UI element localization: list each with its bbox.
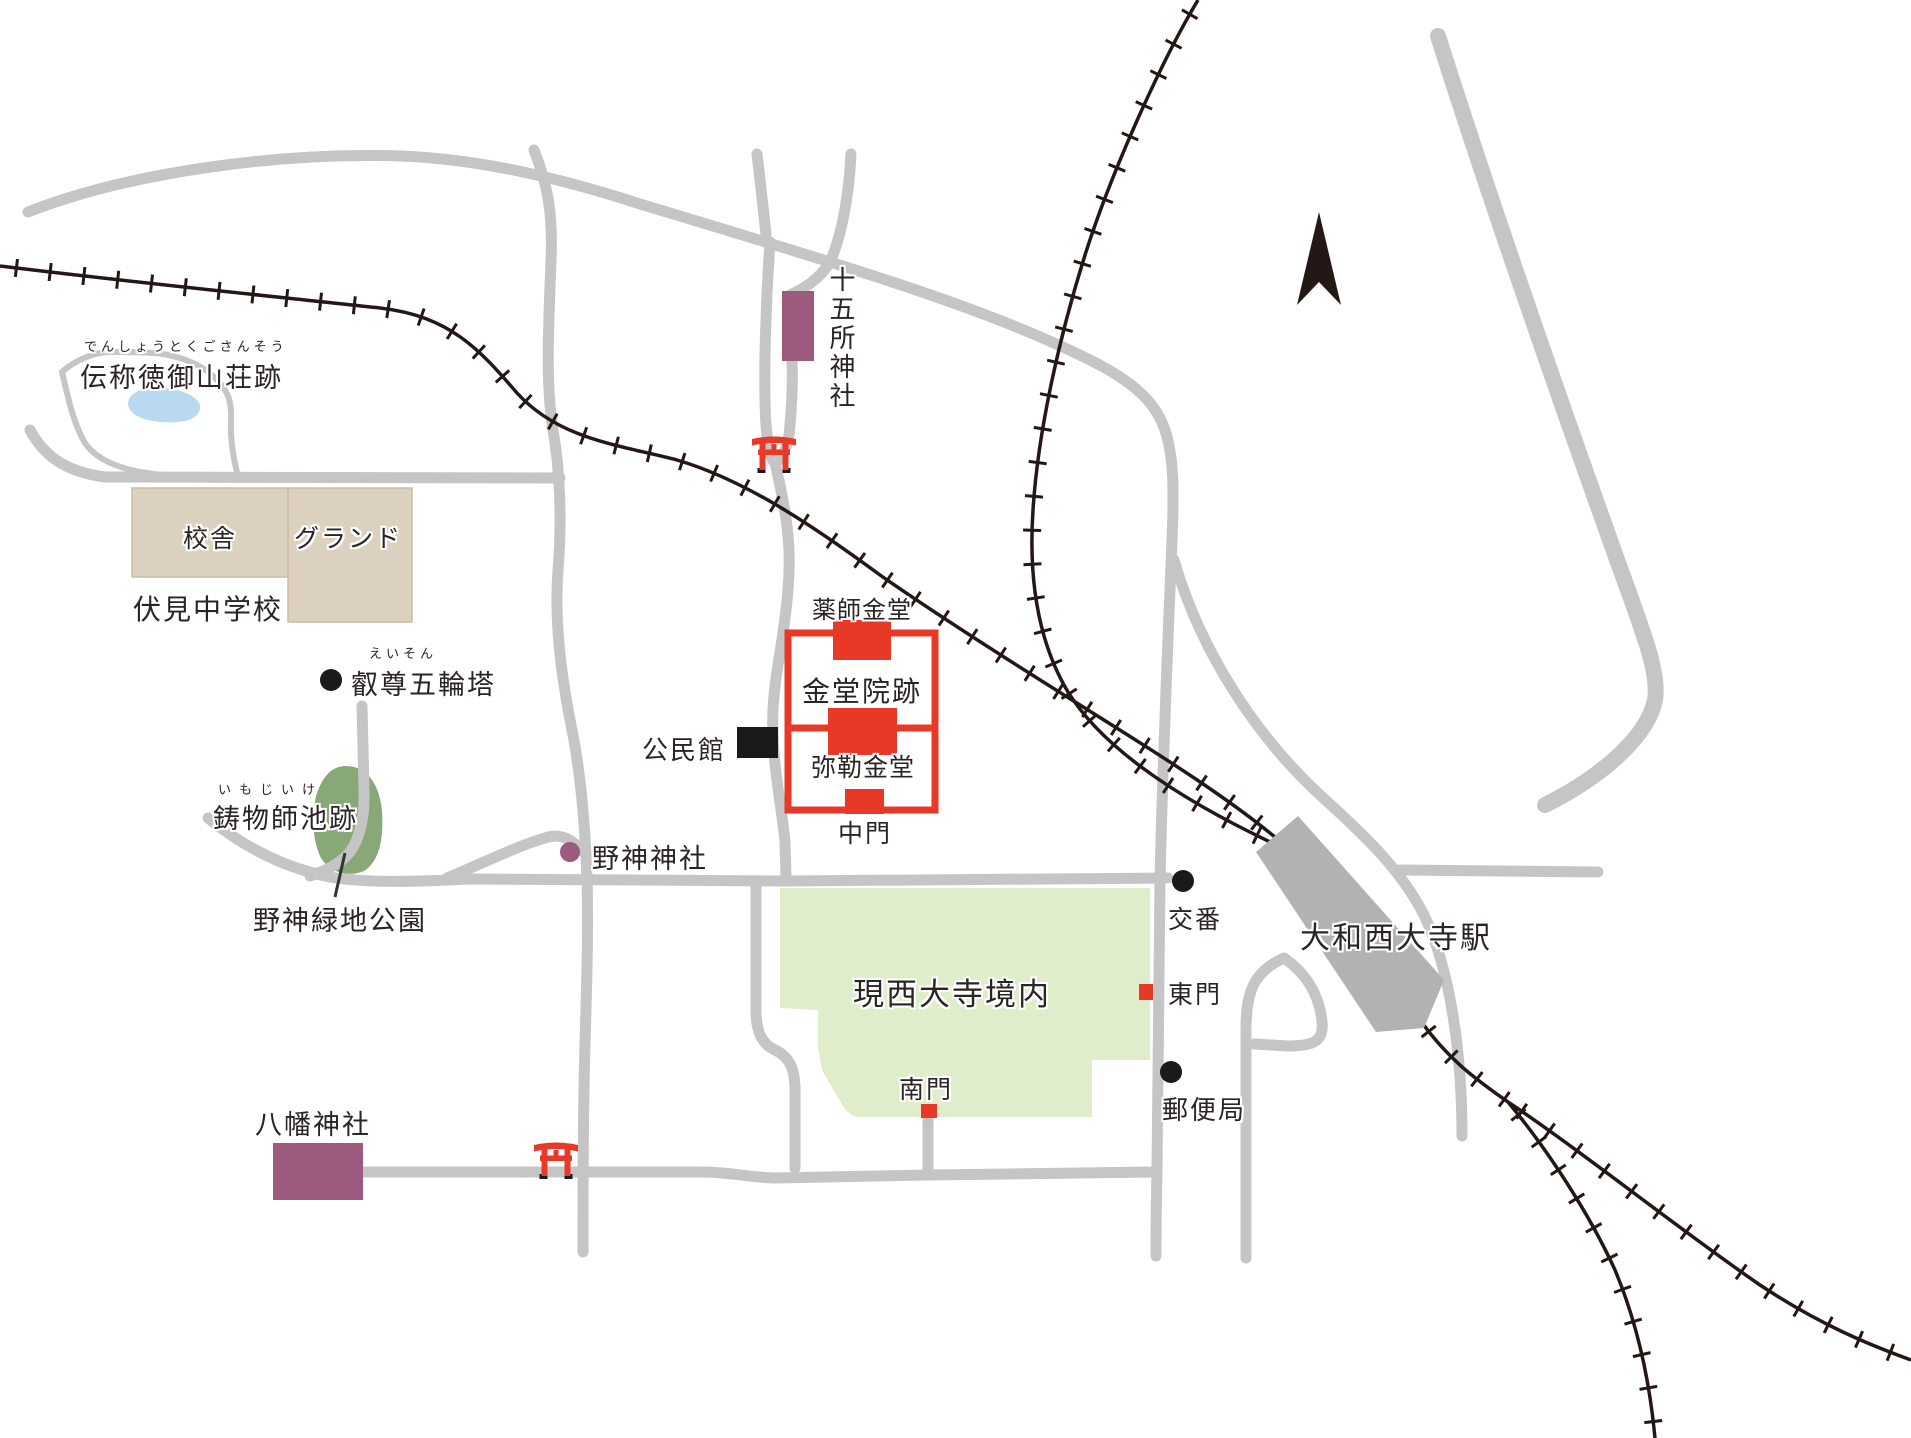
chumon-label: 中門	[838, 814, 892, 850]
saidaiji-precinct-label: 現西大寺境内	[853, 969, 1051, 1014]
station-label: 大和西大寺駅	[1300, 913, 1492, 957]
kominkan-block	[737, 727, 778, 758]
yakushi-kondo-label: 薬師金堂	[812, 590, 912, 625]
eison-furigana: えいそん	[369, 643, 437, 662]
hachiman-shrine-label: 八幡神社	[255, 1103, 371, 1142]
railways	[0, 0, 1911, 1438]
jugosho-shrine-block	[782, 291, 814, 361]
railway-ticks	[1023, 10, 1261, 844]
post-office-label: 郵便局	[1162, 1090, 1246, 1127]
railway-branch-east	[1508, 1102, 1911, 1360]
jugosho-shrine-label: 十五所神社	[822, 266, 859, 411]
south-gate-label: 南門	[899, 1070, 953, 1106]
nogami-shrine-label: 野神神社	[592, 837, 708, 876]
south-gate-marker	[921, 1104, 937, 1118]
imojiike-furigana: いもじいけ	[218, 779, 323, 798]
nogami-shrine-dot	[560, 842, 580, 862]
school-building-label: 校舎	[183, 519, 237, 555]
east-gate-label: 東門	[1168, 975, 1222, 1011]
road-station-east	[1400, 870, 1598, 872]
map-canvas	[0, 0, 1911, 1438]
area-map: でんしょうとくごさんそう 伝称徳御山荘跡 校舎 グランド 伏見中学校 えいそん …	[0, 0, 1911, 1438]
hachiman-shrine-block	[273, 1143, 363, 1200]
kondoin-label: 金堂院跡	[802, 670, 922, 710]
koban-dot	[1172, 870, 1194, 892]
school-name-label: 伏見中学校	[133, 588, 283, 628]
densho-furigana: でんしょうとくごさんそう	[84, 336, 288, 355]
road-bottom-horizontal	[365, 1172, 1157, 1178]
imojiike-label: 鋳物師池跡	[213, 797, 358, 836]
shrine-buildings	[273, 291, 814, 1200]
north-arrow-icon	[1297, 212, 1341, 305]
nogami-park-label: 野神緑地公園	[253, 899, 427, 938]
school-ground-block	[288, 488, 412, 622]
kondoin-complex	[788, 620, 935, 814]
road-long-vertical	[534, 150, 588, 1252]
road-shrine-north-left	[757, 154, 766, 235]
east-gate-marker	[1139, 984, 1153, 1000]
kominkan-label: 公民館	[642, 730, 726, 767]
road-northeast-diagonal	[1438, 36, 1656, 805]
railway-ticks	[1517, 1104, 1894, 1361]
chumon-block	[845, 789, 884, 814]
koban-label: 交番	[1168, 900, 1222, 936]
eison-label: 叡尊五輪塔	[351, 663, 496, 702]
eison-dot	[320, 669, 342, 691]
road-p-loop	[1246, 958, 1322, 1258]
densho-label: 伝称徳御山荘跡	[80, 356, 283, 395]
school-ground-label: グランド	[294, 519, 402, 555]
post-office-dot	[1160, 1061, 1182, 1083]
miroku-kondo-label: 弥勒金堂	[811, 748, 915, 784]
yakushi-kondo-block	[833, 620, 891, 660]
road-school	[30, 430, 560, 478]
